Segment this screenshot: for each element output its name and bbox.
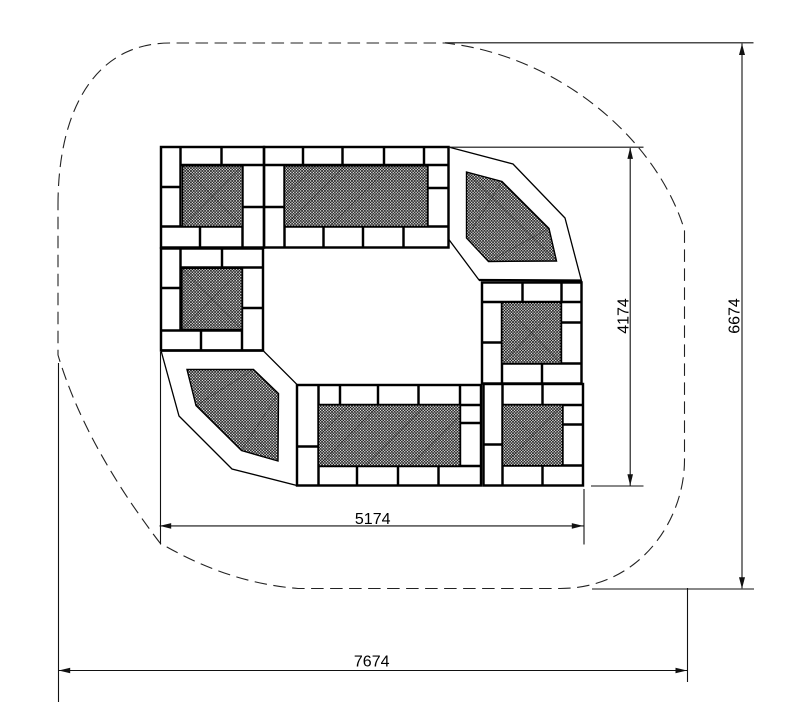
svg-text:6674: 6674 bbox=[727, 298, 744, 334]
svg-text:4174: 4174 bbox=[616, 298, 633, 334]
svg-text:7674: 7674 bbox=[354, 653, 390, 670]
svg-text:5174: 5174 bbox=[355, 511, 391, 528]
